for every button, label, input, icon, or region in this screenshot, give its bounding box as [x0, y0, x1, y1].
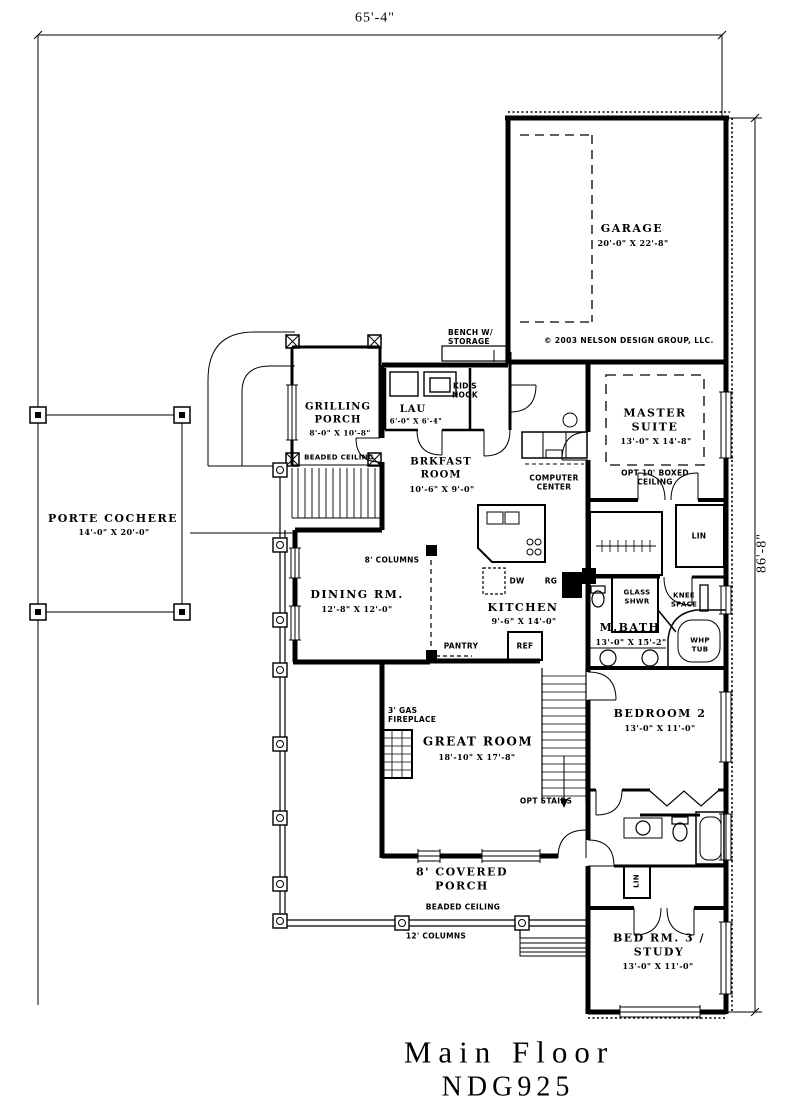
boxed-ceiling-note: OPT 10' BOXED CEILING — [607, 469, 703, 488]
interior-walls — [588, 500, 726, 908]
fireplace-label: 3' GAS FIREPLACE — [388, 706, 446, 725]
bed-room-3-label: BED RM. 3 / STUDY — [607, 931, 711, 959]
great-room-label: GREAT ROOM — [423, 735, 533, 750]
columns-12-label: 12' COLUMNS — [406, 931, 466, 940]
grilling-porch-label: GRILLING PORCH — [300, 402, 376, 427]
grilling-porch-columns — [286, 335, 381, 466]
linen-2-label: LIN — [633, 874, 642, 888]
garage-label: GARAGE — [601, 222, 663, 236]
dishwasher-label: DW — [509, 576, 524, 585]
right-dimension: 86'-8" — [753, 533, 771, 573]
computer-center-desk — [522, 432, 587, 464]
plan-title: Main Floor — [404, 1034, 614, 1073]
kitchen-label: KITCHEN — [488, 601, 559, 615]
garage-bay-dashed — [520, 135, 592, 322]
porch-steps — [292, 465, 380, 518]
floor-plan-page: 65'-4" 86'-8" © 2003 NELSON DESIGN GROUP… — [0, 0, 800, 1102]
master-suite-label: MASTER SUITE — [617, 406, 693, 434]
porch-beaded-ceiling-note: BEADED CEILING — [426, 902, 500, 911]
master-suite-dims: 13'-0" X 14'-8" — [620, 436, 691, 446]
kids-nook-label: KID'S NOOK — [446, 382, 484, 401]
copyright-notice: © 2003 NELSON DESIGN GROUP, LLC. — [544, 336, 714, 345]
knee-space-label: KNEE SPACE — [662, 591, 706, 609]
computer-center-label: COMPUTER CENTER — [517, 474, 591, 493]
dining-room-dims: 12'-8" X 12'-0" — [321, 604, 392, 614]
top-dimension: 65'-4" — [355, 9, 395, 27]
porte-cochere-dims: 14'-0" X 20'-0" — [78, 527, 149, 537]
dining-columns — [426, 545, 437, 661]
smoke-detector — [563, 413, 577, 427]
range-label: RG — [545, 576, 558, 585]
grilling-porch-dims: 8'-0" X 10'-8" — [309, 428, 370, 437]
dining-room-label: DINING RM. — [310, 588, 403, 602]
grilling-beaded-ceiling-note: BEADED CEILING — [304, 454, 374, 463]
refrigerator-label: REF — [517, 641, 534, 650]
fireplace — [382, 730, 412, 778]
columns-8-label: 8' COLUMNS — [365, 555, 420, 564]
covered-porch-label: 8' COVERED PORCH — [402, 865, 522, 893]
bedroom-2-label: BEDROOM 2 — [614, 707, 707, 721]
bed-room-3-dims: 13'-0" X 11'-0" — [622, 961, 693, 971]
bedroom-2-dims: 13'-0" X 11'-0" — [624, 723, 695, 733]
porch-columns — [273, 463, 529, 930]
laundry-label: LAU — [400, 404, 427, 417]
glass-shower-label: GLASS SHWR — [616, 588, 658, 606]
bench-storage — [442, 346, 506, 362]
garage-dims: 20'-0" X 22'-8" — [597, 238, 668, 248]
linen-label: LIN — [692, 531, 707, 540]
whirlpool-tub-label: WHP TUB — [684, 636, 716, 654]
porte-cochere-label: PORTE COCHERE — [48, 512, 178, 526]
opt-stairs-label: OPT STAIRS — [520, 796, 572, 805]
great-room-dims: 18'-10" X 17'-8" — [438, 752, 515, 762]
brkfast-room-dims: 10'-6" X 9'-0" — [409, 484, 474, 494]
brkfast-room-label: BRKFAST ROOM — [399, 457, 483, 482]
laundry-dims: 6'-0" X 6'-4" — [390, 418, 442, 427]
master-bath-label: M.BATH — [600, 621, 661, 635]
pantry-label: PANTRY — [444, 641, 479, 650]
plan-number: NDG925 — [442, 1070, 575, 1102]
master-bath-dims: 13'-0" X 15'-2" — [595, 637, 666, 647]
opt-stairs — [542, 668, 586, 808]
bifold-closet-doors — [650, 791, 718, 806]
bench-storage-label: BENCH W/ STORAGE — [448, 328, 510, 347]
kitchen-dims: 9'-6" X 14'-0" — [491, 616, 556, 626]
driveway-walk-lines — [190, 332, 295, 533]
